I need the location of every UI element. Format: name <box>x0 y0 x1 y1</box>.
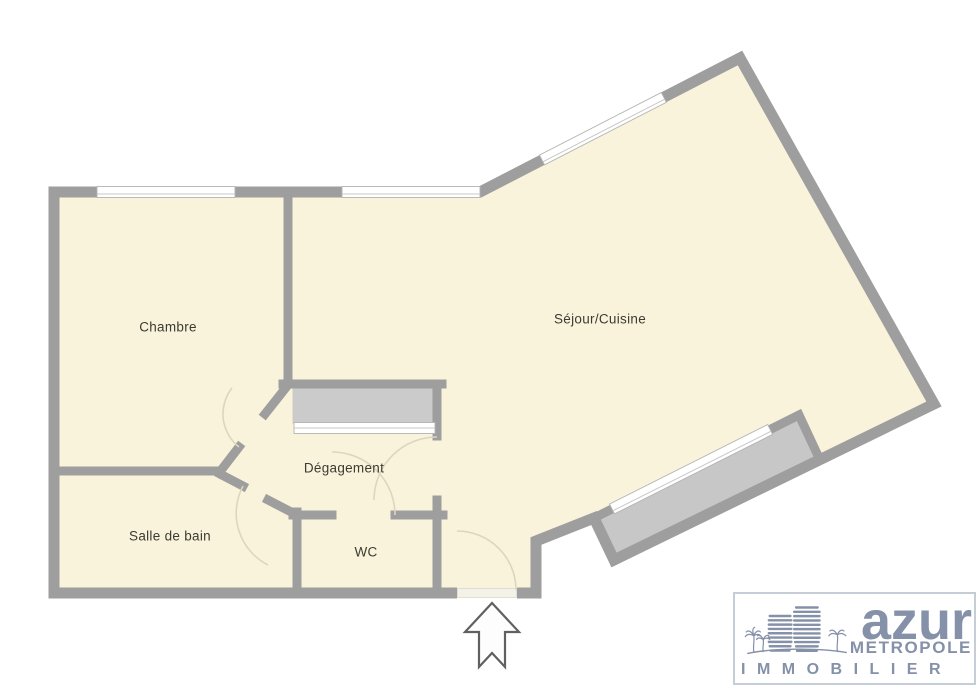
entrance-threshold <box>458 589 517 598</box>
room-label-wc: WC <box>354 545 377 560</box>
room-label-degagement: Dégagement <box>304 461 384 476</box>
agency-logo: azur METROPOLE IMMOBILIER <box>733 592 976 685</box>
floor-plan-drawing <box>0 0 980 686</box>
room-label-chambre: Chambre <box>139 320 197 335</box>
room-label-sejour-cuisine: Séjour/Cuisine <box>554 312 646 327</box>
room-label-salle-de-bain: Salle de bain <box>129 529 211 544</box>
closet <box>293 389 433 424</box>
window-chambre <box>97 187 235 198</box>
logo-banner-text: IMMOBILIER <box>741 662 952 678</box>
closet-sliding-door <box>294 423 435 434</box>
entrance-arrow-icon <box>465 603 519 667</box>
logo-building-icon <box>743 600 851 662</box>
window-sejour-top <box>342 187 480 198</box>
floor-plan-page: Chambre Séjour/Cuisine Dégagement Salle … <box>0 0 980 686</box>
logo-subtitle-text: METROPOLE <box>850 639 972 656</box>
